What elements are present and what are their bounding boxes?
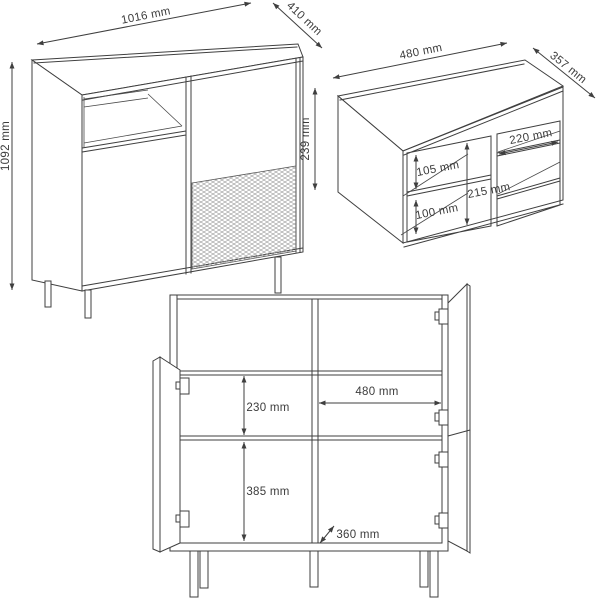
leg bbox=[275, 257, 281, 293]
hinge bbox=[435, 516, 439, 524]
hinge bbox=[176, 515, 180, 522]
dim-label-sideboard-height: 1092 mm bbox=[0, 121, 12, 171]
diagram-canvas: 1016 mm 410 mm 1092 mm 480 mm 357 mm 239… bbox=[0, 0, 600, 600]
insert-perspective-view: 480 mm 357 mm 239 mm 220 mm 105 mm 100 m… bbox=[300, 42, 595, 247]
sideboard-left-face bbox=[32, 60, 82, 291]
dim-label-insert-height: 239 mm bbox=[300, 117, 312, 160]
hinge bbox=[439, 513, 448, 528]
leg bbox=[310, 551, 318, 587]
hinge bbox=[180, 511, 189, 527]
leg bbox=[45, 281, 51, 307]
hinge bbox=[435, 413, 439, 421]
carcass-outline bbox=[170, 295, 448, 551]
front-open-view: 230 mm 385 mm 480 mm 360 mm bbox=[153, 284, 470, 597]
hinge bbox=[439, 410, 448, 425]
hinge bbox=[439, 309, 448, 324]
hinge bbox=[439, 452, 448, 467]
left-door-edge bbox=[153, 357, 160, 552]
dim-label-insert-width: 480 mm bbox=[399, 42, 444, 62]
dim-label-lower-interior-height: 385 mm bbox=[246, 486, 289, 498]
furniture-dimension-diagram: 1016 mm 410 mm 1092 mm 480 mm 357 mm 239… bbox=[0, 0, 600, 600]
leg bbox=[190, 551, 198, 597]
leg bbox=[430, 551, 438, 597]
hinge bbox=[176, 382, 180, 389]
leg bbox=[420, 551, 428, 587]
right-doors-open bbox=[435, 284, 470, 553]
dim-label-upper-interior-height: 230 mm bbox=[246, 402, 289, 414]
hinge bbox=[435, 455, 439, 463]
dim-label-right-interior-width: 480 mm bbox=[355, 386, 398, 398]
dim-line-width bbox=[37, 3, 251, 44]
sideboard-perspective-view: 1016 mm 410 mm 1092 mm bbox=[0, 0, 324, 318]
hinge bbox=[180, 378, 189, 394]
hinge bbox=[435, 312, 439, 320]
right-door-edge bbox=[467, 284, 470, 553]
right-door-panel bbox=[448, 284, 467, 551]
dim-label-interior-depth: 360 mm bbox=[336, 529, 379, 541]
leg bbox=[200, 551, 208, 588]
mesh-door-panel bbox=[192, 166, 296, 269]
front-view-legs bbox=[190, 551, 438, 597]
leg bbox=[85, 290, 91, 318]
